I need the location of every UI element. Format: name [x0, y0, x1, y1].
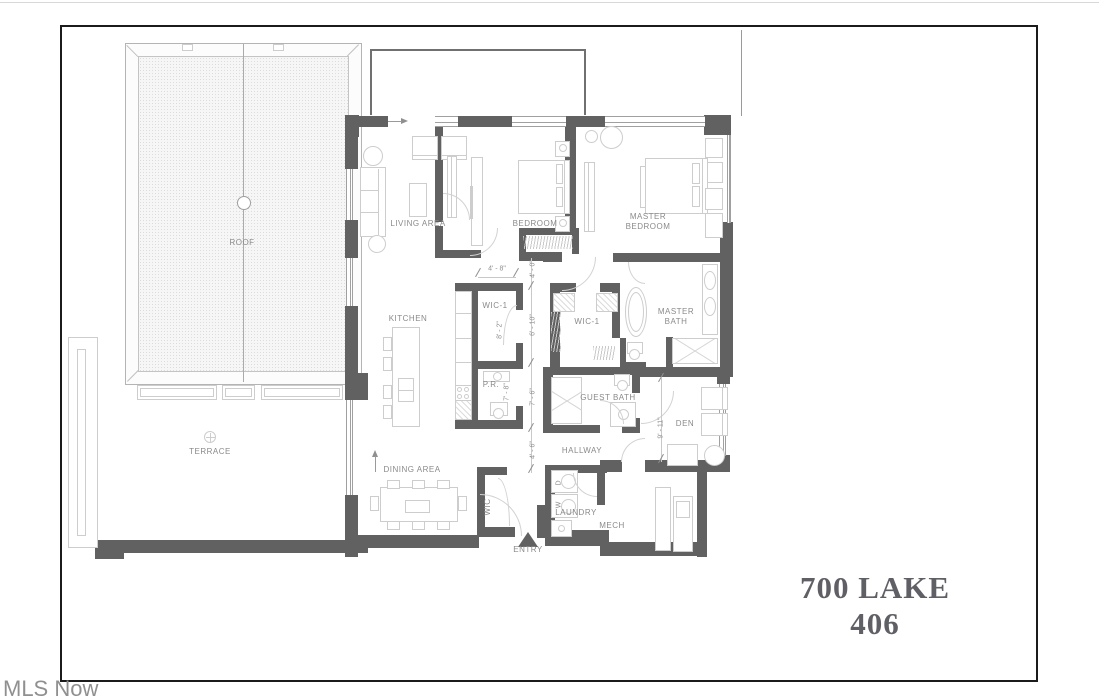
window	[435, 116, 458, 127]
roof-planter-inner	[225, 388, 252, 397]
wall-segment	[345, 306, 358, 376]
dimension-label-hall-upper: 4' - 0"	[530, 260, 539, 278]
wall-segment	[357, 535, 479, 548]
stool	[383, 337, 392, 351]
pillow	[692, 163, 700, 184]
den-chair	[722, 414, 723, 435]
room-label-dining-area: DINING AREA	[383, 465, 440, 475]
room-label-living-area: LIVING AREA	[390, 219, 445, 229]
side-table	[368, 235, 386, 253]
armchair	[412, 155, 438, 156]
side-table	[363, 146, 383, 166]
window	[727, 135, 731, 223]
burner	[464, 387, 469, 392]
wall-segment	[516, 291, 523, 310]
kitchen-island	[392, 327, 420, 427]
wall-segment	[717, 367, 730, 384]
dining-chair	[437, 521, 450, 530]
wall-segment	[345, 373, 368, 400]
room-label-entry: ENTRY	[513, 545, 542, 555]
dining-chair	[412, 480, 425, 489]
bathtub-inner	[628, 292, 644, 332]
wall-segment	[613, 253, 730, 262]
upper-balcony-outline	[370, 49, 586, 115]
room-label-guest-bath: GUEST BATH	[580, 393, 635, 403]
dining-chair	[387, 521, 400, 530]
dimension-label-wic1-depth: 8' - 2"	[497, 321, 506, 339]
terrace-railing-inner	[77, 349, 86, 536]
dimension-label-hall-lower: 7' - 6"	[530, 388, 539, 406]
pillow	[692, 186, 700, 207]
ceiling-fan	[600, 126, 623, 149]
room-label-bedroom: BEDROOM	[513, 219, 558, 229]
sofa	[360, 167, 386, 237]
dresser	[588, 163, 589, 231]
roof-bevel	[347, 44, 359, 56]
stool	[383, 385, 392, 399]
shower	[672, 338, 718, 364]
room-label-roof: ROOF	[229, 238, 254, 248]
stool	[383, 405, 392, 419]
dimension-label-den-depth: 9' - 11"	[658, 417, 667, 438]
ceiling-light	[585, 130, 598, 143]
toilet-bowl	[617, 380, 628, 391]
armchair	[412, 136, 438, 160]
roof-area	[125, 43, 362, 385]
island-sink	[398, 390, 414, 391]
room-label-master-bath: MASTER BATH	[650, 307, 702, 327]
room-label-hallway: HALLWAY	[562, 446, 602, 456]
burner	[457, 387, 462, 392]
entry-direction-arrow-icon	[388, 121, 402, 122]
wall-segment	[345, 220, 358, 258]
room-label-master-bedroom: MASTER BEDROOM	[616, 212, 680, 232]
window	[346, 400, 353, 495]
wall-segment	[717, 115, 731, 135]
dining-chair	[387, 480, 400, 489]
wardrobe	[707, 162, 723, 183]
terrace-arrow-icon	[375, 456, 376, 472]
sofa	[378, 169, 379, 235]
closet-rod	[593, 346, 615, 360]
laundry-sink	[558, 525, 565, 532]
room-label-kitchen: KITCHEN	[389, 314, 428, 324]
room-label-wic1-master: WIC-1	[574, 317, 599, 327]
wardrobe	[705, 213, 723, 238]
wall-segment	[516, 406, 523, 420]
wall-segment	[455, 420, 523, 429]
wall-segment	[95, 540, 124, 559]
window	[605, 116, 705, 127]
room-label-laundry: LAUNDRY	[555, 508, 597, 518]
wall-segment	[519, 228, 579, 235]
closet-rod	[551, 312, 561, 352]
wall-segment	[572, 228, 579, 254]
roof-vent-circle	[237, 196, 251, 210]
floor-plan-canvas: ROOF TERRACE LIVING AREA BEDROOM MASTER …	[0, 0, 1099, 699]
wardrobe	[553, 293, 575, 312]
mech-equipment	[655, 487, 671, 551]
property-line	[741, 30, 742, 116]
roof-ridge-line	[243, 44, 244, 382]
pillow	[556, 187, 563, 207]
room-label-wic1-kitchen: WIC-1	[482, 301, 507, 311]
wall-segment	[345, 136, 358, 169]
burner	[457, 394, 462, 399]
wall-segment	[122, 540, 368, 553]
roof-tab	[182, 44, 193, 51]
wall-segment	[455, 283, 523, 291]
entry-direction-arrow-icon	[401, 118, 408, 124]
wall-segment	[471, 291, 478, 420]
sink	[704, 271, 716, 290]
roof-bevel	[127, 370, 139, 382]
window	[346, 258, 353, 306]
kitchen-counter	[455, 362, 472, 363]
den-chair	[701, 413, 728, 436]
shower	[551, 377, 582, 424]
dimension-label-wic1-width: 4' - 8"	[488, 266, 506, 275]
roof-planter-inner	[140, 388, 214, 397]
dining-chair	[370, 496, 379, 511]
terrace-drain-icon	[210, 433, 211, 442]
wall-segment	[720, 222, 733, 377]
wall-segment	[565, 116, 607, 127]
room-label-powder-room: P.R.	[483, 380, 500, 390]
room-label-terrace: TERRACE	[189, 447, 231, 457]
coffee-table	[409, 183, 427, 217]
dryer-label: D	[556, 480, 565, 485]
washer-label: W	[556, 502, 565, 509]
room-label-mech: MECH	[599, 521, 625, 531]
dining-chair	[458, 496, 467, 511]
pillow	[556, 164, 563, 184]
wall-segment	[597, 465, 605, 505]
dimension-label-powder-depth: 7' - 8"	[504, 383, 513, 401]
unit-title: 700 LAKE 406	[775, 570, 975, 642]
stool	[383, 357, 392, 371]
sofa	[361, 190, 378, 191]
dining-table-center	[405, 500, 430, 513]
mls-watermark: MLS Now	[3, 676, 98, 699]
kitchen-counter	[455, 338, 472, 339]
den-chair	[701, 387, 728, 410]
closet-rod	[523, 236, 573, 249]
lamp	[559, 219, 567, 227]
kitchen-counter	[455, 385, 472, 386]
dresser	[584, 162, 595, 232]
dimension-label-hall-mid: 6' - 10"	[530, 314, 539, 336]
lamp	[559, 144, 567, 152]
top-edge-line	[0, 2, 1099, 3]
wall-segment	[543, 253, 562, 262]
wardrobe	[705, 188, 723, 210]
sink	[704, 297, 716, 316]
dimension-line	[478, 277, 516, 278]
room-label-den: DEN	[676, 419, 694, 429]
tv	[470, 186, 473, 219]
dimension-label-entry-hall: 4' - 6"	[530, 441, 539, 459]
dining-chair	[412, 521, 425, 530]
headboard	[564, 160, 570, 214]
desk	[667, 444, 698, 466]
wardrobe	[705, 138, 723, 158]
roof-tab	[273, 44, 284, 51]
range	[455, 400, 472, 420]
bench	[640, 166, 646, 208]
dining-chair	[437, 480, 450, 489]
toilet-bowl	[493, 408, 504, 419]
toilet-bowl	[629, 349, 640, 360]
round-table	[704, 445, 725, 466]
room-label-entry-closet: WIC	[483, 498, 493, 515]
wall-segment	[632, 375, 640, 393]
window	[346, 169, 353, 220]
wall-segment	[457, 116, 513, 127]
kitchen-counter	[455, 313, 472, 314]
wall-segment	[516, 343, 523, 369]
mech-equipment	[676, 501, 690, 518]
sofa	[361, 212, 378, 213]
wardrobe	[596, 293, 618, 312]
roof-planter-inner	[264, 388, 340, 397]
wall-segment	[357, 116, 388, 127]
wall-segment	[543, 425, 600, 433]
wall-segment	[632, 367, 730, 377]
burner	[464, 394, 469, 399]
roof-bevel	[126, 45, 138, 57]
den-chair	[722, 388, 723, 409]
window	[512, 116, 566, 127]
